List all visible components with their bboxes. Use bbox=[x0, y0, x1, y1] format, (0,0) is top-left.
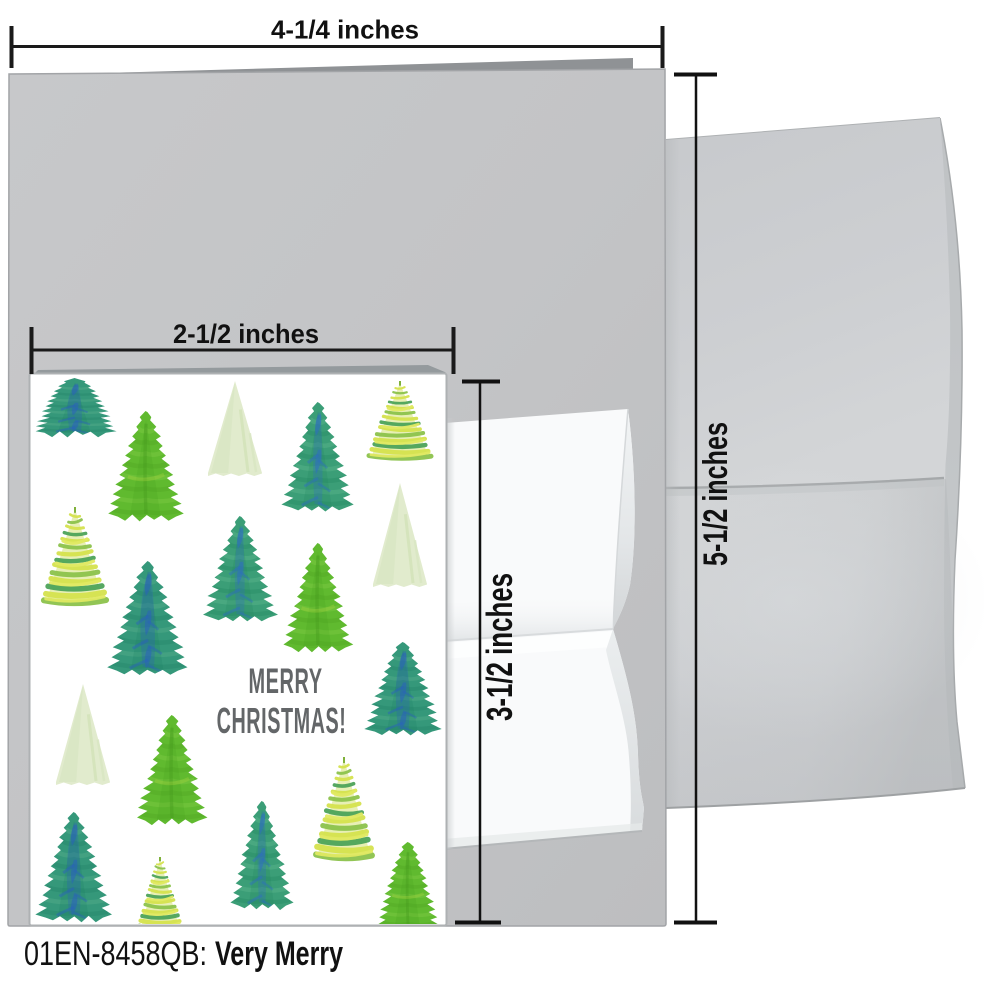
svg-text:4-1/4 inches: 4-1/4 inches bbox=[271, 15, 419, 45]
svg-text:5-1/2 inches: 5-1/2 inches bbox=[697, 422, 735, 566]
svg-text:01EN-8458QB:: 01EN-8458QB: bbox=[24, 935, 207, 973]
svg-text:Very Merry: Very Merry bbox=[215, 935, 343, 973]
svg-text:MERRY: MERRY bbox=[248, 662, 322, 701]
svg-text:2-1/2 inches: 2-1/2 inches bbox=[173, 319, 319, 349]
svg-text:CHRISTMAS!: CHRISTMAS! bbox=[217, 702, 347, 742]
svg-text:3-1/2 inches: 3-1/2 inches bbox=[479, 573, 520, 721]
